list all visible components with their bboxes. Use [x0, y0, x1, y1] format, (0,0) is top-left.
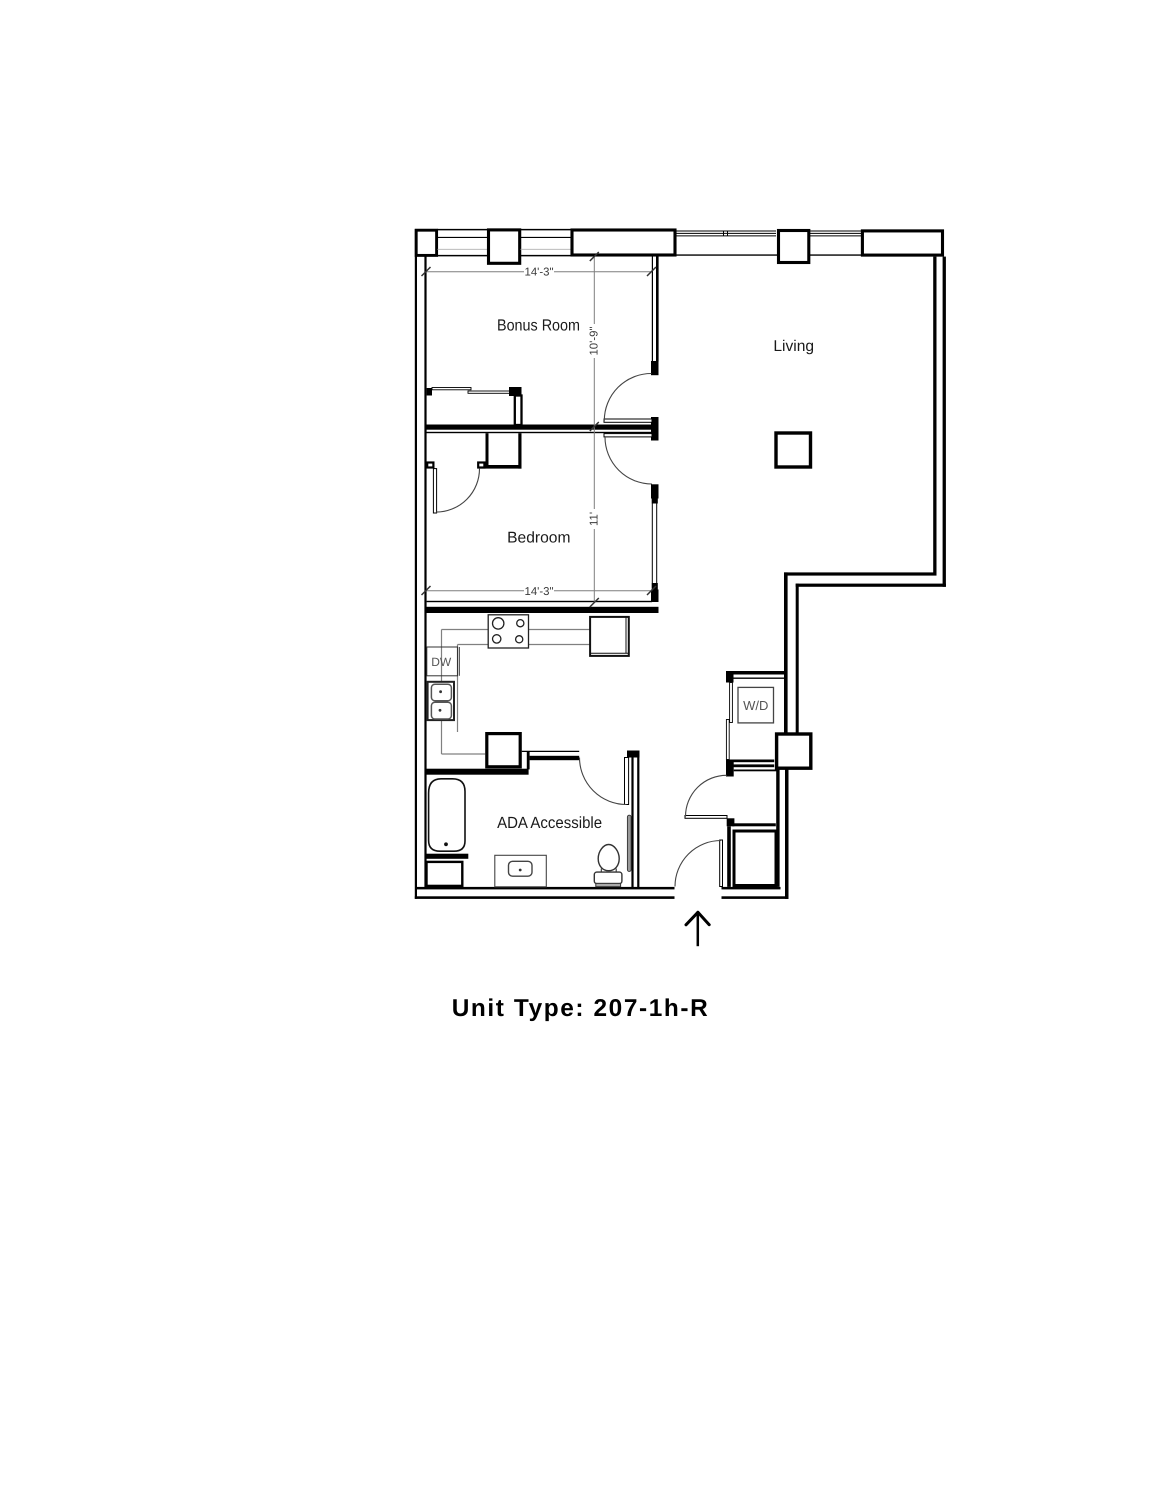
svg-text:Bonus Room: Bonus Room — [497, 317, 580, 335]
svg-text:11': 11' — [588, 512, 600, 526]
svg-text:Bedroom: Bedroom — [507, 529, 570, 546]
svg-text:14'-3": 14'-3" — [524, 267, 553, 279]
svg-text:14'-3": 14'-3" — [524, 586, 553, 598]
svg-text:W/D: W/D — [743, 698, 768, 713]
svg-text:DW: DW — [431, 655, 452, 669]
svg-text:ADA Accessible: ADA Accessible — [497, 814, 602, 832]
svg-text:10'-9": 10'-9" — [588, 326, 600, 355]
svg-text:Living: Living — [773, 338, 814, 355]
svg-text:Unit Type: 207-1h-R: Unit Type: 207-1h-R — [452, 995, 710, 1022]
